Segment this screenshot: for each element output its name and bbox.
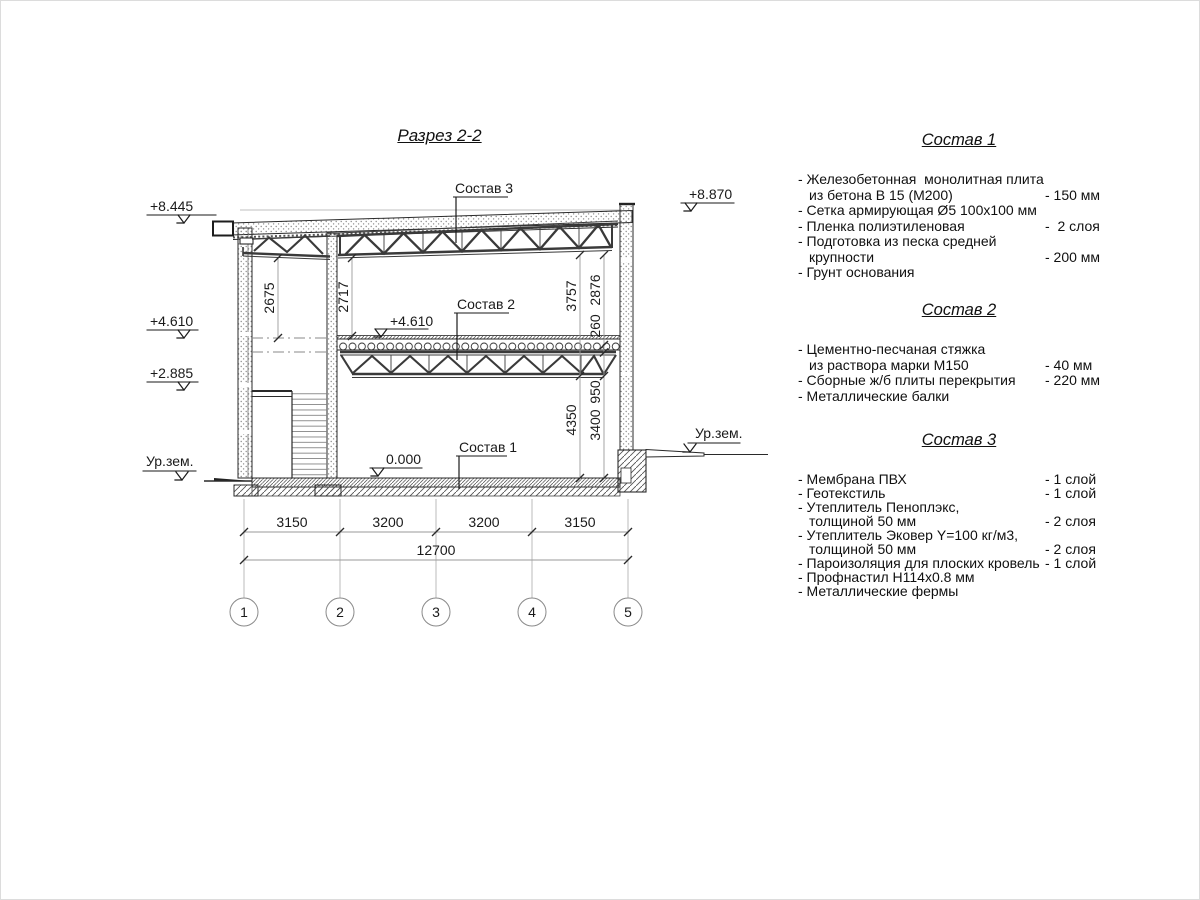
- roof-slab: [213, 204, 635, 240]
- composition-1: Состав 1 - Железобетонная монолитная пли…: [798, 131, 1120, 281]
- dim-2876: 2876: [587, 274, 603, 305]
- elevation-zero: 0.000: [370, 451, 422, 476]
- staircase: [252, 391, 327, 478]
- list-item: из раствора марки М150- 40 мм: [798, 358, 1120, 374]
- svg-text:+4.610: +4.610: [150, 313, 193, 329]
- composition-2-title: Состав 2: [798, 301, 1120, 320]
- item-text: - Металлические фермы: [798, 583, 958, 599]
- roof-truss-left-bay: [243, 236, 330, 260]
- item-value: - 220 мм: [1045, 373, 1100, 389]
- axis-bubble-1: 1: [240, 604, 248, 620]
- dim-3400: 3400: [587, 409, 603, 440]
- interior-wall: [327, 233, 337, 478]
- list-item: - Подготовка из песка средней: [798, 234, 1120, 250]
- composition-1-title: Состав 1: [798, 131, 1120, 150]
- list-item: - Металлические балки: [798, 389, 1120, 405]
- floor-truss: [340, 352, 616, 378]
- list-item: - Утеплитель Эковер Y=100 кг/м3,: [798, 528, 1120, 542]
- list-item: из бетона В 15 (М200)- 150 мм: [798, 188, 1120, 204]
- elevation-roof-left: +8.445: [147, 198, 216, 223]
- list-item: - Пленка полиэтиленовая- 2 слоя: [798, 219, 1120, 235]
- item-text: - Цементно-песчаная стяжка: [798, 341, 985, 357]
- svg-text:+8.445: +8.445: [150, 198, 193, 214]
- item-value: - 1 слой: [1045, 556, 1096, 570]
- item-value: - 1 слой: [1045, 486, 1096, 500]
- item-text: - Подготовка из песка средней: [798, 233, 997, 249]
- item-text: - Металлические балки: [798, 388, 949, 404]
- svg-text:Ур.зем.: Ур.зем.: [146, 453, 194, 469]
- list-item: - Мембрана ПВХ- 1 слой: [798, 472, 1120, 486]
- item-value: - 2 слоя: [1045, 542, 1096, 556]
- axis-bubble-4: 4: [528, 604, 536, 620]
- drawing-title: Разрез 2-2: [352, 126, 527, 146]
- dim-3200-a: 3200: [372, 514, 403, 530]
- svg-text:+8.870: +8.870: [689, 186, 732, 202]
- item-value: - 40 мм: [1045, 358, 1092, 374]
- svg-text:Ур.зем.: Ур.зем.: [695, 425, 743, 441]
- list-item: крупности- 200 мм: [798, 250, 1120, 266]
- dim-2675: 2675: [261, 282, 277, 313]
- truss-bearing-pad: [240, 238, 253, 244]
- item-text: - Грунт основания: [798, 264, 915, 280]
- dim-3757: 3757: [563, 280, 579, 311]
- elevation-landing: +2.885: [147, 365, 198, 390]
- elevation-floor2-inner: +4.610: [374, 313, 433, 337]
- list-item: толщиной 50 мм- 2 слоя: [798, 542, 1120, 556]
- svg-text:+2.885: +2.885: [150, 365, 193, 381]
- dim-3150-b: 3150: [564, 514, 595, 530]
- left-wall: [238, 228, 253, 478]
- elevation-ground-left: Ур.зем.: [143, 453, 196, 480]
- dim-3150-a: 3150: [276, 514, 307, 530]
- item-text: - Пленка полиэтиленовая: [798, 218, 965, 234]
- dim-12700: 12700: [417, 542, 456, 558]
- svg-text:Состав 1: Состав 1: [459, 439, 517, 455]
- axis-bubble-2: 2: [336, 604, 344, 620]
- list-item: - Сборные ж/б плиты перекрытия- 220 мм: [798, 373, 1120, 389]
- dim-260: 260: [587, 314, 603, 338]
- list-item: - Сетка армирующая Ø5 100x100 мм: [798, 203, 1120, 219]
- svg-text:0.000: 0.000: [386, 451, 421, 467]
- item-text: из раствора марки М150: [798, 357, 969, 373]
- foundation-left: [234, 485, 258, 496]
- level-dash-lines: [252, 338, 327, 352]
- svg-text:+4.610: +4.610: [390, 313, 433, 329]
- list-item: толщиной 50 мм- 2 слоя: [798, 514, 1120, 528]
- list-item: - Цементно-песчаная стяжка: [798, 342, 1120, 358]
- dim-2717: 2717: [335, 281, 351, 312]
- pavement-right: [646, 450, 704, 458]
- elevation-floor2-left: +4.610: [147, 313, 198, 338]
- item-text: - Железобетонная монолитная плита: [798, 171, 1044, 187]
- item-value: - 2 слоя: [1045, 514, 1096, 528]
- axis-bubbles: 1 2 3 4 5: [230, 598, 642, 626]
- elevation-ground-right: Ур.зем.: [683, 425, 743, 452]
- roof-eave-cap: [213, 222, 233, 236]
- composition-2: Состав 2 - Цементно-песчаная стяжка из р…: [798, 301, 1120, 404]
- item-value: - 2 слоя: [1045, 219, 1100, 235]
- item-text: из бетона В 15 (М200): [798, 187, 953, 203]
- dim-3200-b: 3200: [468, 514, 499, 530]
- right-wall: [620, 204, 633, 450]
- elevation-roof-right: +8.870: [681, 186, 734, 211]
- list-item: - Пароизоляция для плоских кровель- 1 сл…: [798, 556, 1120, 570]
- list-item: - Профнастил Н114х0.8 мм: [798, 570, 1120, 584]
- item-text: - Сетка армирующая Ø5 100x100 мм: [798, 202, 1037, 218]
- horizontal-dimensions: 3150 3200 3200 3150 12700: [240, 499, 632, 598]
- dim-4350: 4350: [563, 404, 579, 435]
- item-value: - 150 мм: [1045, 188, 1100, 204]
- composition-3: Состав 3 - Мембрана ПВХ- 1 слой - Геотек…: [798, 431, 1120, 598]
- item-value: - 1 слой: [1045, 472, 1096, 486]
- composition-3-title: Состав 3: [798, 431, 1120, 450]
- list-item: - Грунт основания: [798, 265, 1120, 281]
- item-value: - 200 мм: [1045, 250, 1100, 266]
- floor-slab-4610: [337, 336, 620, 351]
- list-item: - Утеплитель Пеноплэкс,: [798, 500, 1120, 514]
- svg-text:Состав 2: Состав 2: [457, 296, 515, 312]
- list-item: - Металлические фермы: [798, 584, 1120, 598]
- axis-bubble-3: 3: [432, 604, 440, 620]
- dim-950: 950: [587, 380, 603, 404]
- axis-bubble-5: 5: [624, 604, 632, 620]
- foundation-middle: [315, 485, 341, 496]
- svg-text:Состав 3: Состав 3: [455, 180, 513, 196]
- item-text: крупности: [798, 249, 874, 265]
- item-text: - Сборные ж/б плиты перекрытия: [798, 372, 1016, 388]
- list-item: - Железобетонная монолитная плита: [798, 172, 1120, 188]
- list-item: - Геотекстиль- 1 слой: [798, 486, 1120, 500]
